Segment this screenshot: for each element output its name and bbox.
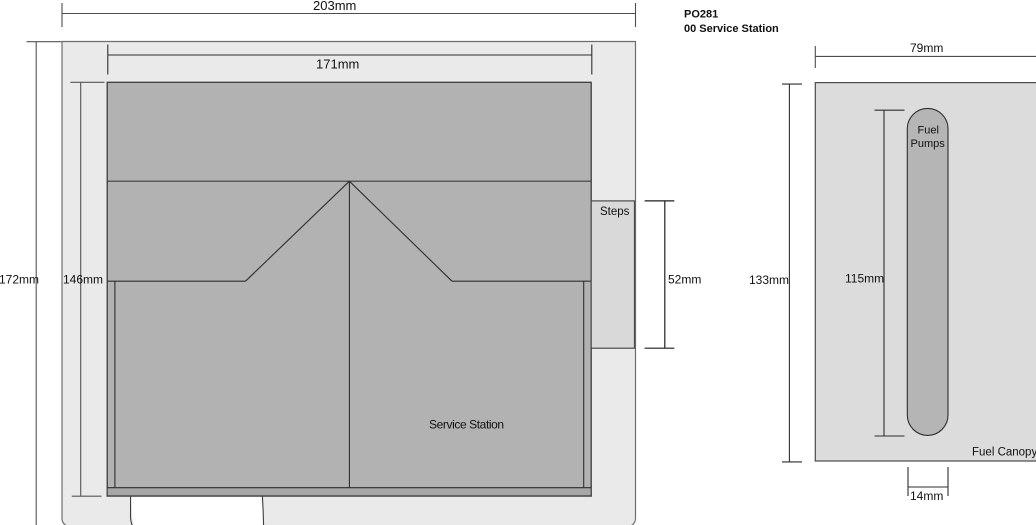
svg-text:79mm: 79mm [910, 41, 943, 55]
svg-text:14mm: 14mm [910, 489, 943, 503]
svg-text:Service Station: Service Station [429, 418, 504, 432]
svg-text:Fuel: Fuel [918, 125, 939, 137]
svg-text:115mm: 115mm [845, 272, 884, 286]
svg-text:Pumps: Pumps [911, 138, 946, 150]
svg-text:133mm: 133mm [749, 273, 789, 287]
svg-text:Steps: Steps [600, 206, 630, 218]
svg-text:52mm: 52mm [668, 273, 701, 287]
svg-text:171mm: 171mm [316, 57, 359, 72]
svg-text:146mm: 146mm [63, 273, 103, 287]
svg-text:Fuel Canopy: Fuel Canopy [972, 447, 1036, 459]
svg-text:PO281: PO281 [684, 9, 718, 21]
svg-text:172mm: 172mm [0, 273, 39, 287]
svg-text:203mm: 203mm [313, 0, 356, 13]
svg-text:00 Service Station: 00 Service Station [684, 23, 779, 35]
